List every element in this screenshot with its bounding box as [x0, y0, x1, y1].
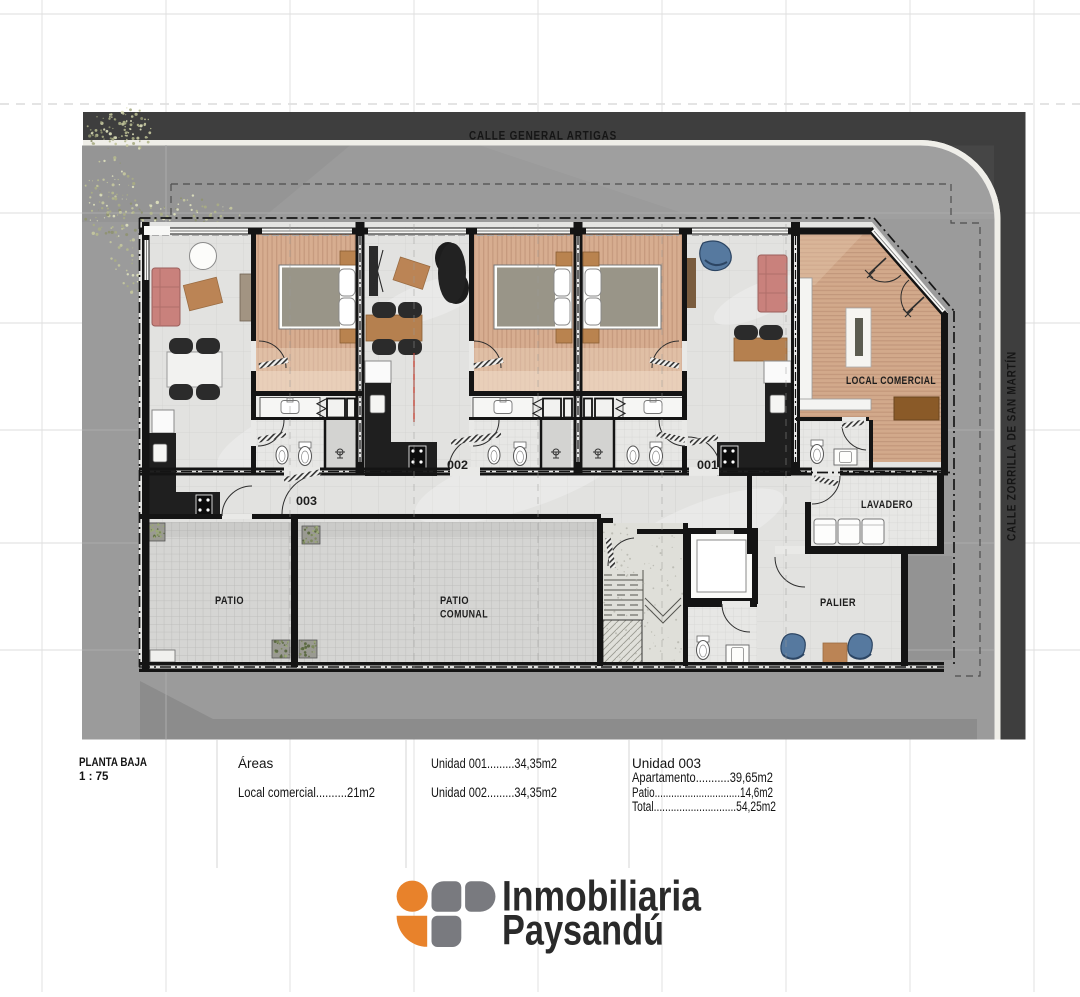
svg-text:CALLE ZORRILLA DE SAN MARTÍN: CALLE ZORRILLA DE SAN MARTÍN [1004, 351, 1019, 541]
svg-text:Paysandú: Paysandú [502, 907, 664, 955]
svg-text:Unidad 002.........34,35m2: Unidad 002.........34,35m2 [431, 785, 557, 800]
svg-text:PALIER: PALIER [820, 597, 856, 609]
svg-text:Unidad 003: Unidad 003 [632, 756, 701, 771]
svg-text:Local comercial..........21m2: Local comercial..........21m2 [238, 785, 375, 800]
svg-text:1 : 75: 1 : 75 [79, 771, 109, 783]
svg-text:CALLE GENERAL ARTIGAS: CALLE GENERAL ARTIGAS [469, 129, 617, 143]
svg-text:001: 001 [697, 460, 719, 472]
svg-text:002: 002 [447, 460, 468, 472]
svg-text:Apartamento...........39,65m2: Apartamento...........39,65m2 [632, 770, 773, 785]
svg-text:PATIO: PATIO [440, 595, 469, 607]
svg-text:Unidad 001.........34,35m2: Unidad 001.........34,35m2 [431, 756, 557, 771]
svg-text:COMUNAL: COMUNAL [440, 609, 488, 621]
svg-text:Áreas: Áreas [238, 756, 274, 771]
svg-text:003: 003 [296, 496, 317, 508]
svg-text:Patio.........................: Patio...............................14,6… [632, 785, 773, 800]
svg-text:LAVADERO: LAVADERO [861, 499, 913, 511]
svg-text:PATIO: PATIO [215, 595, 244, 607]
svg-text:PLANTA BAJA: PLANTA BAJA [79, 757, 147, 769]
svg-text:LOCAL COMERCIAL: LOCAL COMERCIAL [846, 375, 936, 387]
svg-text:Total.........................: Total.............................54,25m… [632, 799, 776, 814]
